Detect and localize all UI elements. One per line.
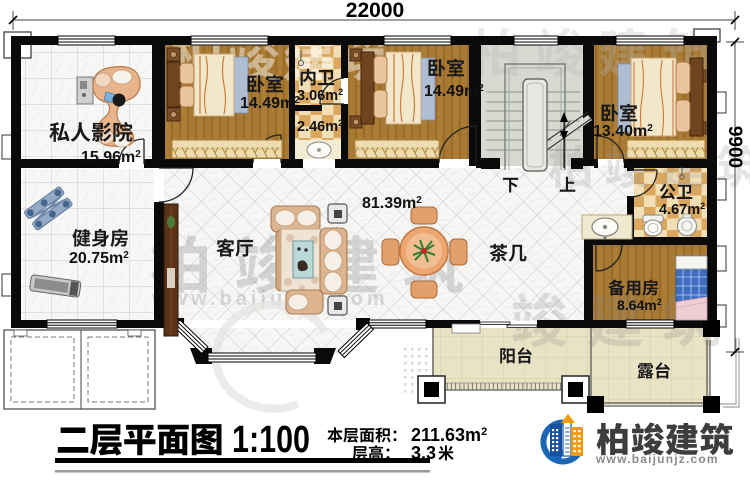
svg-text:www.baijunjz.com: www.baijunjz.com: [595, 452, 719, 466]
svg-text:3.06m2: 3.06m2: [297, 87, 343, 104]
svg-text:14.49m2: 14.49m2: [424, 83, 484, 100]
svg-text:81.39m2: 81.39m2: [362, 195, 422, 212]
svg-text:14.49m2: 14.49m2: [240, 95, 300, 112]
svg-text:211.63m2: 211.63m2: [411, 425, 487, 445]
svg-text:20.75m2: 20.75m2: [69, 250, 129, 267]
svg-text:2.46m2: 2.46m2: [297, 118, 343, 135]
svg-text:9900: 9900: [724, 126, 745, 168]
svg-text:4.67m2: 4.67m2: [659, 201, 705, 218]
svg-text:22000: 22000: [346, 0, 404, 22]
svg-text:1:100: 1:100: [232, 419, 310, 461]
svg-text:3.3: 3.3: [411, 443, 436, 463]
svg-text:13.40m2: 13.40m2: [593, 123, 653, 140]
svg-text:15.96m2: 15.96m2: [81, 149, 141, 166]
svg-text:8.64m2: 8.64m2: [617, 297, 662, 313]
